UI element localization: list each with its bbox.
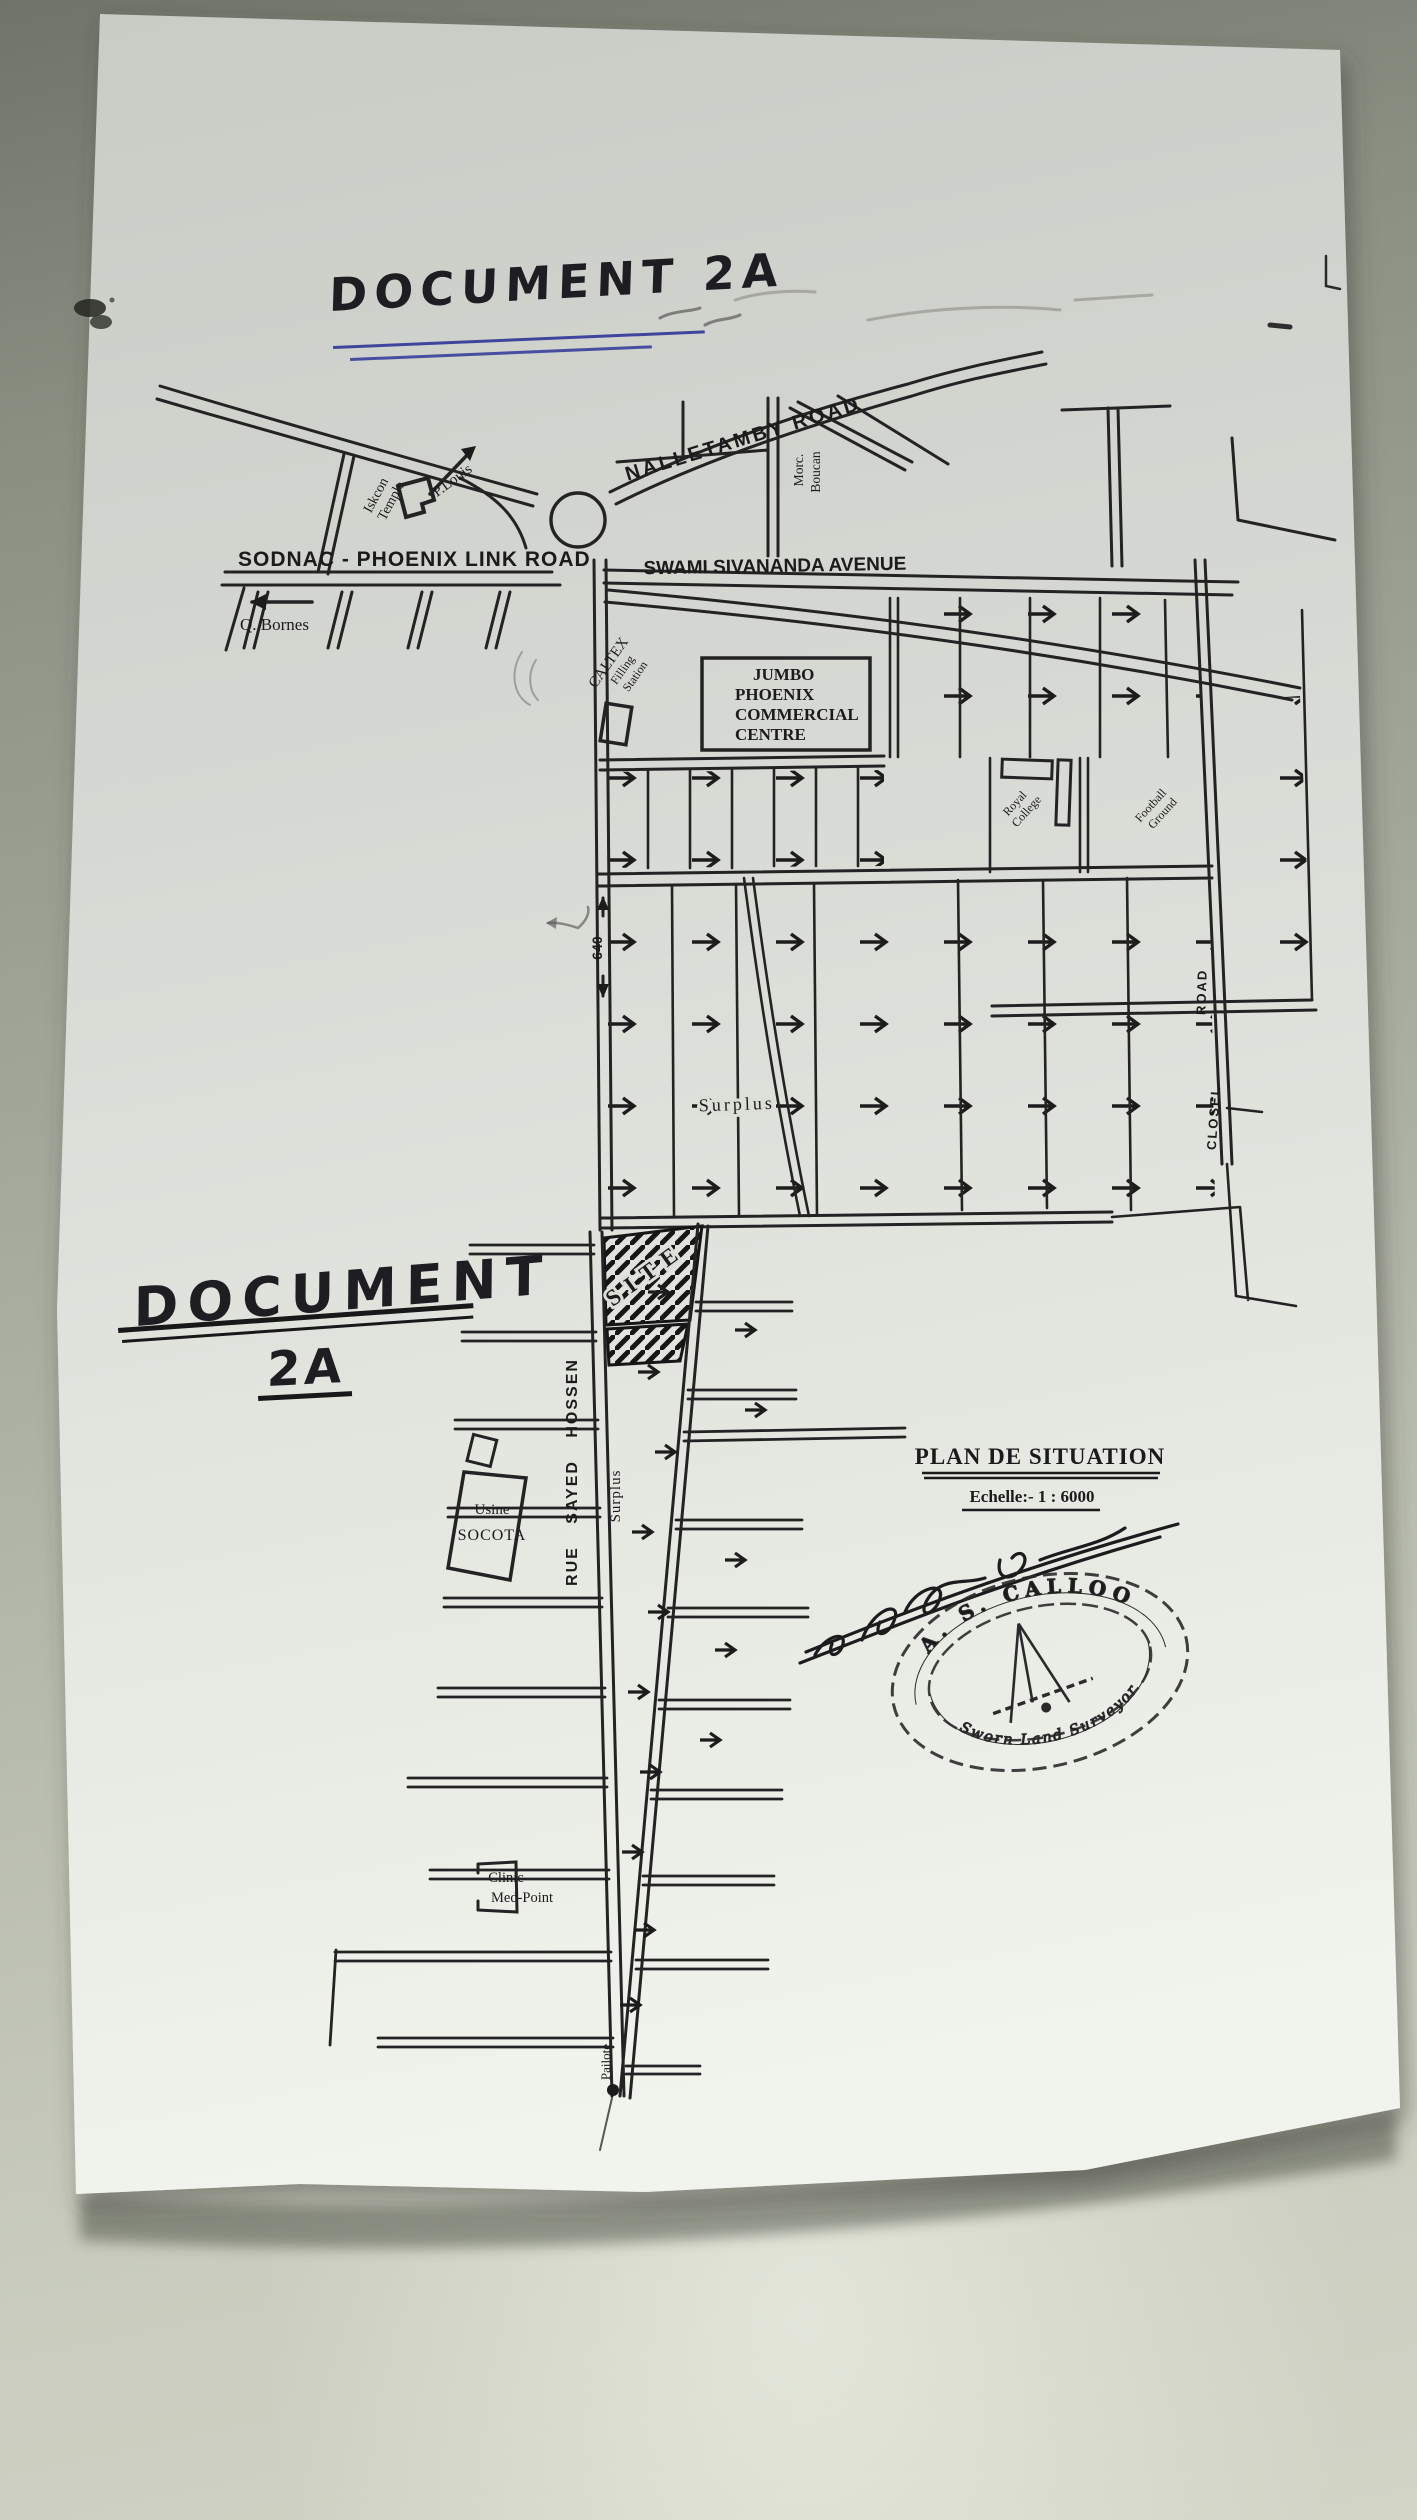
plan-photo-svg: A. S. CALLOO Sworn Land Surveyor PLAN DE… [0, 0, 1417, 2520]
jumbo-label-3: COMMERCIAL [735, 705, 859, 724]
morc-label-2: Boucan [808, 451, 823, 492]
usine-label-1: Usine [475, 1502, 510, 1518]
distance-label: 640 [589, 936, 605, 960]
handwritten-left-title-2a: 2A [266, 1338, 346, 1398]
pailote-label: Pailote [598, 2044, 613, 2080]
quatre-bornes-label: Q. Bornes [240, 615, 309, 634]
clinic-label-2: Med-Point [491, 1890, 553, 1906]
jumbo-label-4: CENTRE [735, 725, 806, 744]
parcel-arrows-east [1240, 696, 1312, 1004]
legend-title: PLAN DE SITUATION [915, 1444, 1165, 1469]
road-junction-blob [607, 2084, 619, 2096]
surplus-south-label: Surplus [608, 1470, 624, 1523]
surplus-main-label: Surplus [698, 1093, 775, 1116]
closel-road-word-label: ROAD [1193, 968, 1210, 1015]
jumbo-label-1: JUMBO [753, 665, 814, 684]
site-hatched-strip [607, 1324, 688, 1365]
sodnac-link-road-label: SODNAC - PHOENIX LINK ROAD [238, 548, 591, 571]
jumbo-label-2: PHOENIX [735, 685, 815, 704]
rue-sayed-hossen-label: RUE SAYED HOSSEN [564, 1358, 581, 1586]
usine-label-2: SOCOTA [458, 1527, 527, 1544]
parcel-arrows-upper [892, 600, 1203, 756]
parcel-arrows-mid [600, 770, 884, 868]
parcel-arrows-surplus [600, 882, 1215, 1216]
legend-scale: Echelle:- 1 : 6000 [969, 1487, 1094, 1506]
morc-label-1: Morc. [791, 454, 806, 487]
clinic-label-1: Clinic [488, 1870, 523, 1886]
photographed-document: A. S. CALLOO Sworn Land Surveyor PLAN DE… [0, 0, 1417, 2520]
